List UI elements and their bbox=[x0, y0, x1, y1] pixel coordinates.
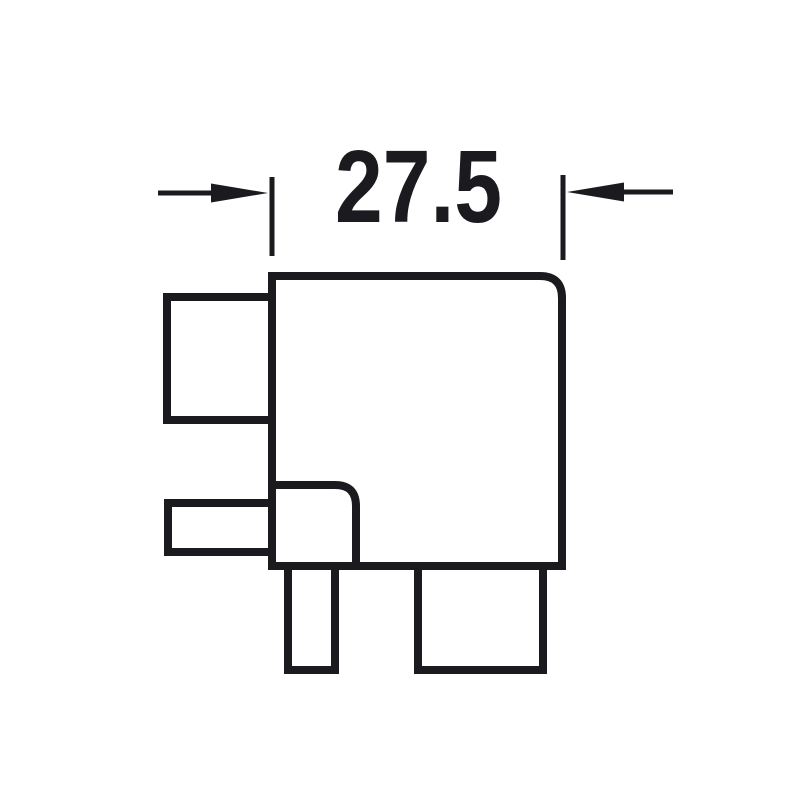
bottom-pin-small bbox=[288, 566, 335, 670]
part-dimension-drawing: 27.5 bbox=[0, 0, 800, 800]
dimension-arrowhead-right-icon bbox=[567, 183, 624, 202]
dimension-label: 27.5 bbox=[335, 129, 502, 244]
technical-drawing-canvas: 27.5 bbox=[0, 0, 800, 800]
left-tab-upper bbox=[167, 297, 272, 420]
part-body bbox=[272, 276, 562, 566]
dimension-arrowhead-left-icon bbox=[211, 184, 268, 203]
left-tab-lower bbox=[168, 503, 272, 552]
bottom-pin-large bbox=[418, 566, 543, 670]
